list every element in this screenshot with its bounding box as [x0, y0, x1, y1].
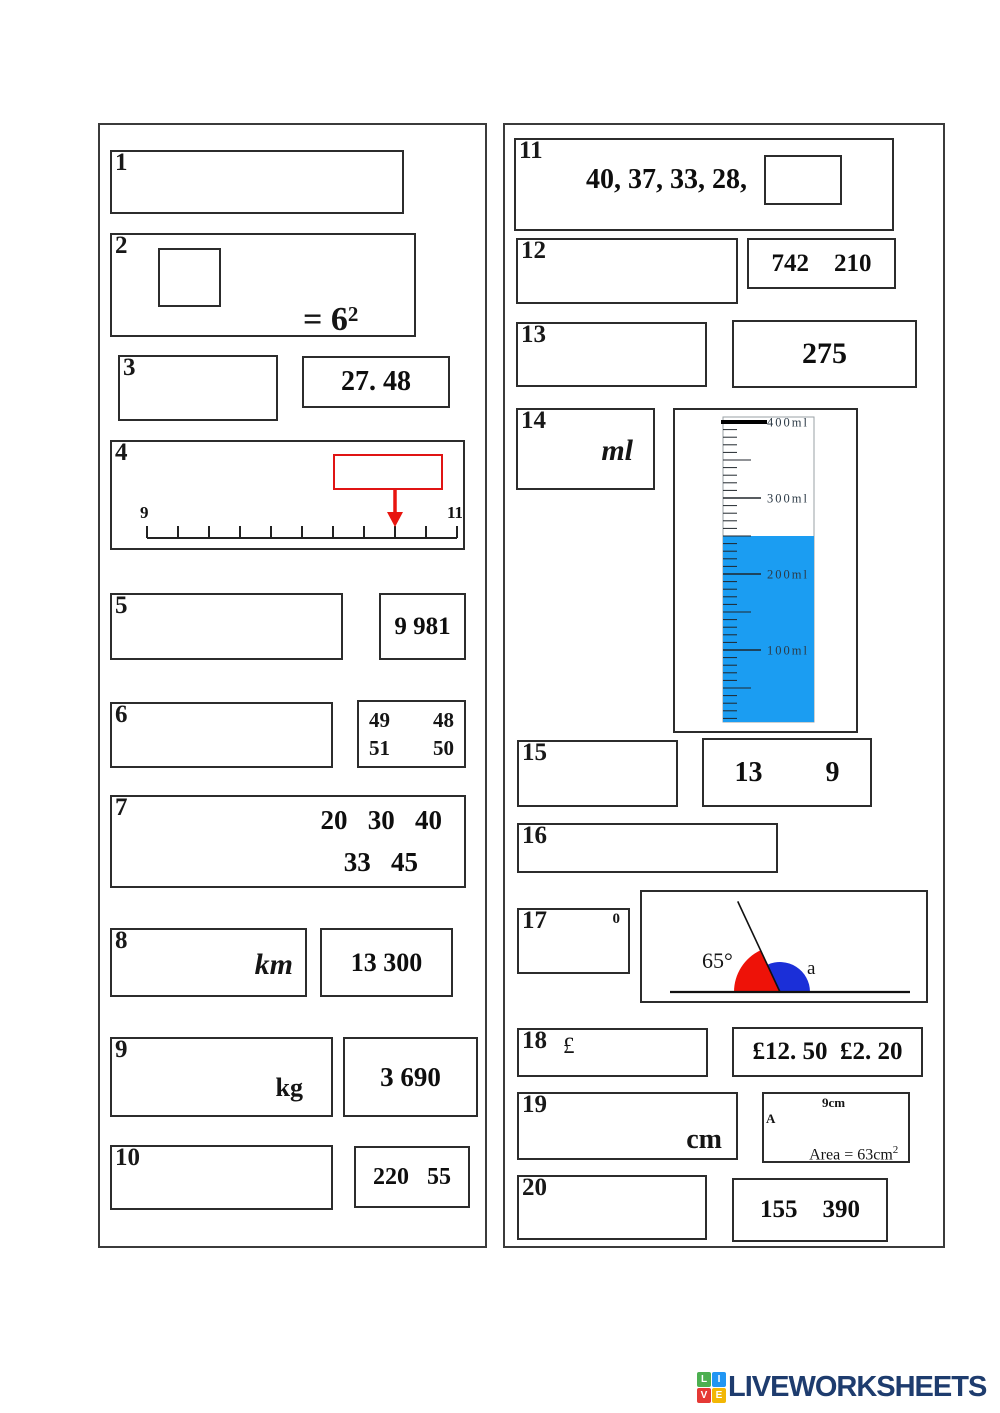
q17-answer-box[interactable]: 17 0 [517, 908, 630, 974]
measuring-cylinder: 400ml300ml200ml100ml [675, 410, 855, 730]
q14-number: 14 [521, 407, 546, 436]
q6-answer-box[interactable]: 6 [110, 702, 333, 768]
q5-value: 9 981 [394, 613, 450, 641]
svg-text:100ml: 100ml [767, 644, 809, 658]
q9-number: 9 [115, 1036, 128, 1065]
q5-number: 5 [115, 592, 128, 621]
angle-diagram [642, 892, 925, 1000]
q7-values-line1: 20 30 40 [321, 805, 443, 836]
q14-unit: ml [601, 434, 633, 468]
q11-answer-square[interactable] [764, 155, 842, 205]
q4-box: 4 911 [110, 440, 465, 550]
q9-value: 3 690 [380, 1062, 441, 1093]
q16-number: 16 [522, 822, 547, 851]
q5-answer-box[interactable]: 5 [110, 593, 343, 660]
q19-width-label: 9cm [822, 1095, 845, 1111]
q3-answer-box[interactable]: 3 [118, 355, 278, 421]
q13-value: 275 [802, 337, 847, 371]
q6-option: 50 [412, 736, 455, 761]
q9-answer-box[interactable]: 9 kg [110, 1037, 333, 1117]
q17-number: 17 [522, 907, 547, 936]
q13-value-box: 275 [732, 320, 917, 388]
q18-value: £12. 50 £2. 20 [753, 1038, 903, 1066]
q8-unit: km [255, 948, 293, 982]
q11-box: 11 40, 37, 33, 28, [514, 138, 894, 231]
q19-answer-box[interactable]: 19 cm [517, 1092, 738, 1160]
q19-side-label: A [766, 1111, 775, 1127]
q17-angle-diagram-box: 65° a [640, 890, 928, 1003]
liveworksheets-grid-icon: LIVE [697, 1372, 726, 1403]
q10-value-box: 220 55 [354, 1146, 470, 1208]
q3-value-box: 27. 48 [302, 356, 450, 408]
q15-answer-box[interactable]: 15 [517, 740, 678, 807]
q8-number: 8 [115, 927, 128, 956]
logo-square-e: E [712, 1388, 726, 1403]
q11-number: 11 [519, 137, 543, 166]
q5-value-box: 9 981 [379, 593, 466, 660]
angle-known-label: 65° [702, 948, 733, 974]
q2-box: 2 = 62 [110, 233, 416, 337]
q6-option: 49 [369, 708, 412, 733]
q7-values-line2: 33 45 [344, 847, 418, 878]
q19-rectangle-diagram: 9cm A Area = 63cm2 [762, 1092, 910, 1163]
q20-answer-box[interactable]: 20 [517, 1175, 707, 1240]
svg-text:400ml: 400ml [767, 416, 809, 430]
q15-value-box: 13 9 [702, 738, 872, 807]
q15-value: 13 9 [735, 757, 840, 789]
q17-degree-mark: 0 [613, 911, 621, 928]
q19-number: 19 [522, 1091, 547, 1120]
logo-square-v: V [697, 1388, 711, 1403]
angle-unknown-label: a [807, 958, 815, 980]
q9-value-box: 3 690 [343, 1037, 478, 1117]
q8-value-box: 13 300 [320, 928, 453, 997]
q14-cylinder-box: 400ml300ml200ml100ml [673, 408, 858, 733]
q10-value: 220 55 [373, 1164, 451, 1191]
q15-number: 15 [522, 739, 547, 768]
q3-value: 27. 48 [341, 366, 411, 398]
q6-number: 6 [115, 701, 128, 730]
q10-answer-box[interactable]: 10 [110, 1145, 333, 1210]
q12-value: 742 210 [772, 250, 872, 278]
svg-text:9: 9 [140, 503, 149, 522]
q13-answer-box[interactable]: 13 [516, 322, 707, 387]
liveworksheets-logo[interactable]: LIVE LIVEWORKSHEETS [697, 1371, 986, 1404]
liveworksheets-wordmark: LIVEWORKSHEETS [728, 1371, 986, 1404]
q18-answer-box[interactable]: 18 £ [517, 1028, 708, 1077]
q11-sequence: 40, 37, 33, 28, [586, 164, 747, 196]
q20-number: 20 [522, 1174, 547, 1203]
logo-square-i: I [712, 1372, 726, 1387]
q6-option: 51 [369, 736, 412, 761]
q2-answer-square[interactable] [158, 248, 221, 307]
q6-option: 48 [412, 708, 455, 733]
q6-options-box: 49 48 51 50 [357, 700, 466, 768]
q8-answer-box[interactable]: 8 km [110, 928, 307, 997]
q6-options-grid: 49 48 51 50 [359, 702, 464, 766]
q1-answer-box[interactable]: 1 [110, 150, 404, 214]
q12-value-box: 742 210 [747, 238, 896, 289]
worksheet-page: 1 2 = 62 3 27. 48 4 911 5 9 981 6 49 48 … [0, 0, 1000, 1413]
q1-number: 1 [115, 149, 128, 178]
q19-area-exponent: 2 [893, 1144, 899, 1156]
q9-unit: kg [276, 1073, 303, 1103]
q12-number: 12 [521, 237, 546, 266]
q18-currency: £ [563, 1033, 575, 1059]
q18-value-box: £12. 50 £2. 20 [732, 1027, 923, 1077]
q7-number: 7 [115, 794, 128, 823]
q12-answer-box[interactable]: 12 [516, 238, 738, 304]
q8-value: 13 300 [351, 948, 423, 978]
q14-answer-box[interactable]: 14 ml [516, 408, 655, 490]
q20-value-box: 155 390 [732, 1178, 888, 1242]
logo-square-l: L [697, 1372, 711, 1387]
q20-value: 155 390 [760, 1196, 860, 1224]
svg-text:300ml: 300ml [767, 492, 809, 506]
q13-number: 13 [521, 321, 546, 350]
q10-number: 10 [115, 1144, 140, 1173]
q2-number: 2 [115, 232, 128, 261]
q18-number: 18 [522, 1027, 547, 1056]
q19-unit: cm [686, 1124, 722, 1156]
q4-answer-box[interactable] [333, 454, 443, 490]
q19-area-label: Area = 63cm2 [786, 1126, 898, 1182]
q7-box[interactable]: 7 20 30 40 33 45 [110, 795, 466, 888]
svg-text:200ml: 200ml [767, 568, 809, 582]
q3-number: 3 [123, 354, 136, 383]
svg-text:11: 11 [447, 503, 462, 522]
q2-exponent: 2 [348, 302, 359, 326]
q16-answer-box[interactable]: 16 [517, 823, 778, 873]
